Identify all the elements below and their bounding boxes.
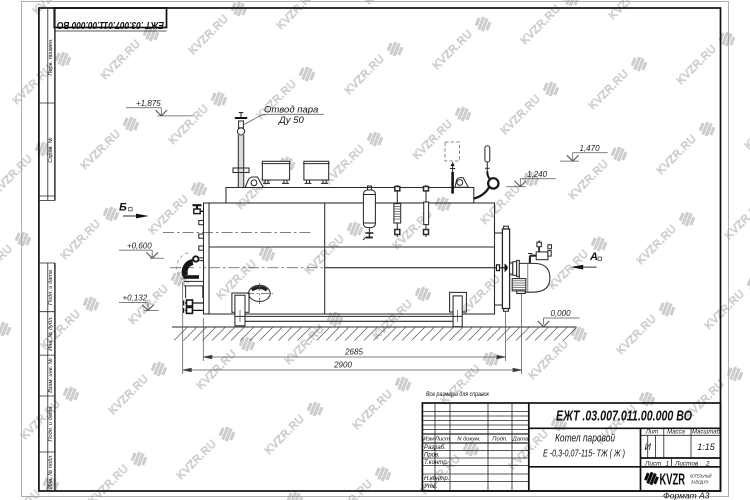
- svg-text:Разраб.: Разраб.: [424, 445, 446, 451]
- svg-text:1:15: 1:15: [697, 442, 716, 452]
- svg-text:Изм: Изм: [423, 437, 434, 443]
- svg-text:Перв. примен.: Перв. примен.: [48, 38, 54, 75]
- svg-text:+0,132: +0,132: [123, 294, 148, 303]
- svg-text:КОТЕЛЬНЫЙ: КОТЕЛЬНЫЙ: [690, 472, 712, 479]
- svg-text:Н.контр.: Н.контр.: [424, 476, 449, 482]
- svg-text:Лист: Лист: [644, 460, 662, 467]
- svg-text:Лит: Лит: [645, 430, 658, 436]
- svg-text:ЕЖТ .03.007.011.00.000 ВО: ЕЖТ .03.007.011.00.000 ВО: [57, 19, 164, 30]
- svg-text:Е -0,3-0,07-115- ТЖ ( Ж ): Е -0,3-0,07-115- ТЖ ( Ж ): [543, 449, 625, 460]
- svg-text:2685: 2685: [344, 348, 363, 357]
- svg-text:Масса: Масса: [667, 430, 685, 436]
- svg-text:Т.контр.: Т.контр.: [424, 460, 448, 466]
- svg-text:ЗАВОД.РУ: ЗАВОД.РУ: [691, 480, 709, 485]
- svg-text:Подп. и дата: Подп. и дата: [48, 406, 54, 441]
- svg-text:Справ. №: Справ. №: [48, 137, 54, 162]
- svg-text:Лист: Лист: [434, 437, 450, 443]
- svg-text:Отвод пара: Отвод пара: [264, 105, 318, 116]
- svg-text:Масштаб: Масштаб: [692, 430, 721, 436]
- svg-text:Листов: Листов: [674, 460, 699, 467]
- svg-text:1: 1: [666, 460, 670, 467]
- svg-text:Ду 50: Ду 50: [278, 115, 304, 126]
- svg-text:Инв. № подл.: Инв. № подл.: [48, 454, 54, 489]
- svg-text:Котел паровой: Котел паровой: [555, 433, 615, 445]
- svg-text:N докум.: N докум.: [457, 437, 480, 443]
- svg-text:Взам. инв. №: Взам. инв. №: [48, 358, 54, 393]
- svg-text:Все размеры для справок: Все размеры для справок: [426, 390, 490, 398]
- svg-text:Б: Б: [119, 202, 127, 214]
- svg-text:1,470: 1,470: [580, 144, 601, 153]
- svg-text:2: 2: [705, 460, 710, 467]
- svg-text:А: А: [589, 251, 598, 263]
- svg-text:+0,600: +0,600: [127, 241, 152, 250]
- svg-text:KVZR: KVZR: [660, 472, 686, 489]
- svg-text:И: И: [645, 442, 652, 452]
- svg-text:ЕЖТ .03.007.011.00.000 ВО: ЕЖТ .03.007.011.00.000 ВО: [556, 409, 693, 425]
- svg-text:0,000: 0,000: [551, 309, 572, 318]
- svg-text:1,240: 1,240: [527, 170, 548, 179]
- svg-text:+1,875: +1,875: [136, 99, 161, 108]
- svg-text:Подп.: Подп.: [492, 437, 507, 443]
- svg-text:Дата: Дата: [512, 437, 529, 443]
- svg-text:Подп. и дата: Подп. и дата: [48, 270, 54, 305]
- svg-text:Формат А3: Формат А3: [663, 491, 710, 500]
- svg-text:Пров.: Пров.: [424, 453, 440, 459]
- svg-text:Инв. № дубл.: Инв. № дубл.: [48, 316, 54, 350]
- svg-text:2900: 2900: [333, 361, 352, 370]
- svg-text:Утв.: Утв.: [423, 484, 438, 490]
